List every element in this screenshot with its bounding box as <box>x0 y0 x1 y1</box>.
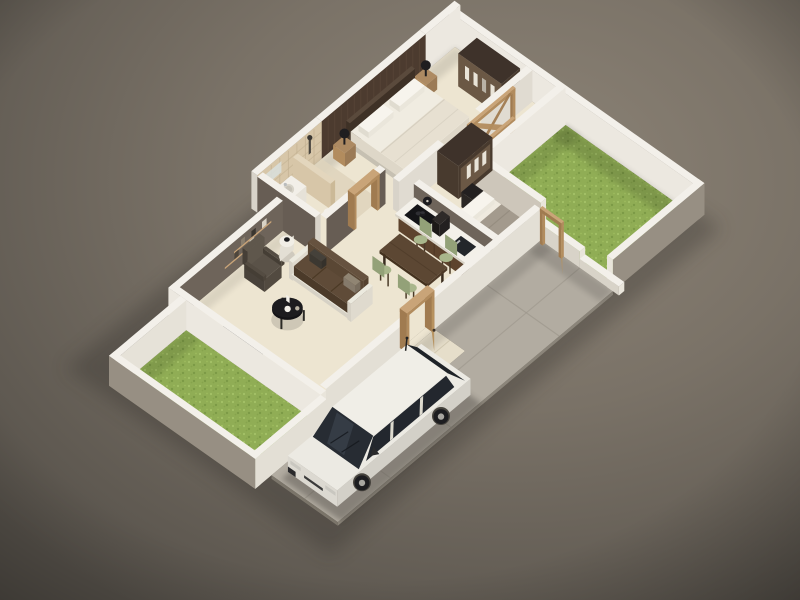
car-antenna-tip <box>406 337 409 340</box>
car-wheel-hub <box>438 413 444 419</box>
bedside-lamp-icon <box>421 60 431 70</box>
wall-back-bathroom-sw <box>251 171 257 213</box>
candle-ball <box>284 306 290 312</box>
wall-bath-front-a-se <box>379 169 385 209</box>
yard-door-post-sw <box>559 221 562 258</box>
table-decor <box>295 306 299 310</box>
wall-master-front-b-sw <box>393 178 399 214</box>
wall-frontyard-front-sw <box>249 455 255 489</box>
bath-door-post-se <box>354 193 356 230</box>
dining-chair-seat <box>414 235 428 244</box>
door-handle-icon <box>433 329 436 332</box>
wall-clock-center <box>426 200 428 202</box>
shower-head-icon <box>307 135 312 140</box>
bath-door-post-se <box>378 174 380 211</box>
yard-door-post-sw <box>540 208 543 245</box>
floorplan-stage <box>0 0 800 600</box>
bathroom-faucet-icon <box>284 183 287 186</box>
dining-chair-seat <box>439 253 453 262</box>
bedside-lamp-icon <box>339 129 349 139</box>
cooking-pot-lid <box>421 211 425 214</box>
sofa-armrest-sw <box>347 301 351 322</box>
floorplan-3d-render <box>0 0 800 600</box>
car-wheel-hub <box>359 480 365 486</box>
side-table-decor <box>284 237 290 242</box>
